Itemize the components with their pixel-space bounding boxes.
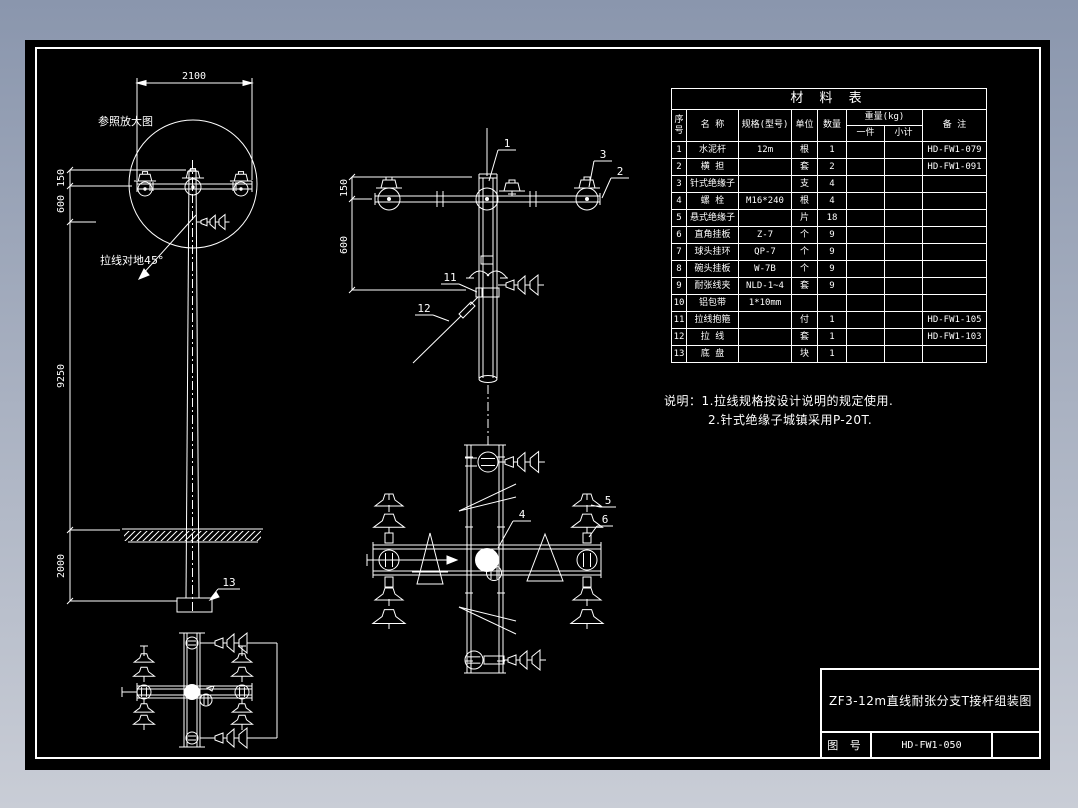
cell-qty: 1 xyxy=(818,346,847,363)
table-row: 2横 担套2HD-FW1-091 xyxy=(672,159,987,176)
cell-spec: 12m xyxy=(739,142,792,159)
cell-w_each xyxy=(847,159,885,176)
cell-note xyxy=(923,346,987,363)
cell-name: 铝包带 xyxy=(687,295,739,312)
dim-mid-600: 600 xyxy=(339,236,350,254)
table-row: 10铝包带1*10mm xyxy=(672,295,987,312)
table-row: 13底 盘块1 xyxy=(672,346,987,363)
enlarged-view-label: 参照放大图 xyxy=(98,114,153,128)
cell-note xyxy=(923,176,987,193)
cell-qty: 9 xyxy=(818,244,847,261)
col-header-weight-each: 一件 xyxy=(847,126,885,142)
cell-note xyxy=(923,261,987,278)
callout-12: 12 xyxy=(417,302,430,315)
cell-no: 12 xyxy=(672,329,687,346)
cell-w_sub xyxy=(885,176,923,193)
cell-unit: 个 xyxy=(792,227,818,244)
col-header-weight-subtotal: 小计 xyxy=(885,126,923,142)
table-row: 3针式绝缘子支4 xyxy=(672,176,987,193)
drawing-title: ZF3-12m直线耐张分支T接杆组装图 xyxy=(822,670,1039,733)
cell-qty: 1 xyxy=(818,312,847,329)
cell-qty: 9 xyxy=(818,278,847,295)
cell-note xyxy=(923,193,987,210)
cell-unit: 根 xyxy=(792,142,818,159)
table-row: 8碗头挂板W-7B个9 xyxy=(672,261,987,278)
notes: 说明：1.拉线规格按设计说明的规定使用. 2.针式绝缘子城镇采用P-20T. xyxy=(664,392,893,430)
cell-note xyxy=(923,278,987,295)
cell-no: 8 xyxy=(672,261,687,278)
cell-note xyxy=(923,210,987,227)
note-line-1: 说明：1.拉线规格按设计说明的规定使用. xyxy=(664,392,893,411)
col-header-unit: 单位 xyxy=(792,110,818,142)
cell-w_each xyxy=(847,278,885,295)
stay-angle-label: 拉线对地45° xyxy=(100,253,164,267)
cell-w_sub xyxy=(885,312,923,329)
cell-name: 螺 栓 xyxy=(687,193,739,210)
cad-drawing-window: 2100 150 600 9250 2000 xyxy=(0,0,1078,808)
cell-qty: 9 xyxy=(818,227,847,244)
cell-no: 13 xyxy=(672,346,687,363)
cell-w_sub xyxy=(885,295,923,312)
stay-insulator-string xyxy=(201,215,230,230)
table-row: 4螺 栓M16*240根4 xyxy=(672,193,987,210)
ground-hatch xyxy=(124,531,261,541)
table-row: 11拉线抱箍付1HD-FW1-105 xyxy=(672,312,987,329)
cell-qty xyxy=(818,295,847,312)
cell-qty: 4 xyxy=(818,176,847,193)
materials-table-body: 1水泥杆12m根1HD-FW1-0792横 担套2HD-FW1-0913针式绝缘… xyxy=(672,142,987,363)
cell-qty: 4 xyxy=(818,193,847,210)
cell-no: 6 xyxy=(672,227,687,244)
callout-13: 13 xyxy=(222,576,235,589)
col-header-name: 名 称 xyxy=(687,110,739,142)
cell-no: 3 xyxy=(672,176,687,193)
cell-unit: 根 xyxy=(792,193,818,210)
dim-left-150: 150 xyxy=(56,169,67,187)
table-row: 1水泥杆12m根1HD-FW1-079 xyxy=(672,142,987,159)
cell-spec xyxy=(739,312,792,329)
small-string-right xyxy=(232,646,253,730)
callout-6: 6 xyxy=(602,513,609,526)
pole-top-plan-view xyxy=(122,633,277,748)
dim-left-9250: 9250 xyxy=(56,364,67,388)
cell-name: 水泥杆 xyxy=(687,142,739,159)
cell-no: 9 xyxy=(672,278,687,295)
cell-spec: QP-7 xyxy=(739,244,792,261)
callout-3: 3 xyxy=(600,148,607,161)
cell-note: HD-FW1-091 xyxy=(923,159,987,176)
cell-w_sub xyxy=(885,261,923,278)
cell-w_sub xyxy=(885,159,923,176)
cell-unit: 块 xyxy=(792,346,818,363)
cell-name: 底 盘 xyxy=(687,346,739,363)
cell-name: 悬式绝缘子 xyxy=(687,210,739,227)
cell-note xyxy=(923,227,987,244)
cell-w_sub xyxy=(885,227,923,244)
col-header-spec: 规格(型号) xyxy=(739,110,792,142)
cell-w_each xyxy=(847,210,885,227)
suspension-string-right xyxy=(506,275,544,295)
cell-unit: 个 xyxy=(792,261,818,278)
table-row: 6直角挂板Z-7个9 xyxy=(672,227,987,244)
col-header-weight: 重量(kg) xyxy=(847,110,923,126)
branch-string-top xyxy=(465,452,545,473)
cell-name: 拉线抱箍 xyxy=(687,312,739,329)
cell-w_each xyxy=(847,244,885,261)
stay-wire xyxy=(470,297,478,305)
col-header-no: 序号 xyxy=(672,110,687,142)
dim-mid-150: 150 xyxy=(339,179,350,197)
cell-spec xyxy=(739,346,792,363)
cell-qty: 2 xyxy=(818,159,847,176)
cell-spec xyxy=(739,176,792,193)
cell-unit: 个 xyxy=(792,244,818,261)
cell-w_each xyxy=(847,176,885,193)
cell-spec: Z-7 xyxy=(739,227,792,244)
cell-w_each xyxy=(847,227,885,244)
suspension-string-right xyxy=(571,494,603,629)
table-row: 9耐张线夹NLD-1~4套9 xyxy=(672,278,987,295)
cell-w_each xyxy=(847,346,885,363)
cell-name: 针式绝缘子 xyxy=(687,176,739,193)
cell-note: HD-FW1-103 xyxy=(923,329,987,346)
dim-left-600: 600 xyxy=(56,195,67,213)
cell-no: 1 xyxy=(672,142,687,159)
branch-string-bottom xyxy=(465,650,546,670)
cell-unit xyxy=(792,295,818,312)
cell-no: 10 xyxy=(672,295,687,312)
table-row: 5悬式绝缘子片18 xyxy=(672,210,987,227)
drawing-number: HD-FW1-050 xyxy=(872,733,993,757)
cell-w_each xyxy=(847,261,885,278)
dim-span-2100: 2100 xyxy=(182,71,206,82)
cell-spec xyxy=(739,210,792,227)
cell-no: 5 xyxy=(672,210,687,227)
suspension-string-left xyxy=(373,494,405,629)
cell-unit: 套 xyxy=(792,159,818,176)
middle-elevation-view: 1 3 2 150 600 xyxy=(339,128,629,447)
cell-w_sub xyxy=(885,329,923,346)
cell-spec xyxy=(739,329,792,346)
title-block-empty-cell xyxy=(993,733,1039,757)
cell-name: 拉 线 xyxy=(687,329,739,346)
base-plate xyxy=(177,598,212,612)
drawing-number-label: 图 号 xyxy=(822,733,872,757)
col-header-note: 备 注 xyxy=(923,110,987,142)
cell-unit: 支 xyxy=(792,176,818,193)
table-row: 12拉 线套1HD-FW1-103 xyxy=(672,329,987,346)
cell-no: 7 xyxy=(672,244,687,261)
col-header-qty: 数量 xyxy=(818,110,847,142)
pole-top-section xyxy=(475,548,499,572)
cell-unit: 片 xyxy=(792,210,818,227)
table-title: 材 料 表 xyxy=(672,89,987,110)
cell-w_sub xyxy=(885,278,923,295)
cell-note: HD-FW1-105 xyxy=(923,312,987,329)
cell-spec: M16*240 xyxy=(739,193,792,210)
cell-spec: NLD-1~4 xyxy=(739,278,792,295)
cell-name: 横 担 xyxy=(687,159,739,176)
cell-no: 11 xyxy=(672,312,687,329)
cell-qty: 1 xyxy=(818,329,847,346)
cell-no: 2 xyxy=(672,159,687,176)
cell-w_sub xyxy=(885,244,923,261)
cell-no: 4 xyxy=(672,193,687,210)
branch-plan-view: 4 5 6 xyxy=(367,445,616,673)
cell-unit: 套 xyxy=(792,278,818,295)
cell-w_each xyxy=(847,329,885,346)
cell-name: 碗头挂板 xyxy=(687,261,739,278)
cell-unit: 套 xyxy=(792,329,818,346)
callout-4: 4 xyxy=(519,508,526,521)
dim-left-2000: 2000 xyxy=(56,554,67,578)
left-elevation-view: 2100 150 600 9250 2000 xyxy=(56,71,263,614)
note-line-2: 2.针式绝缘子城镇采用P-20T. xyxy=(708,411,893,430)
table-row: 7球头挂环QP-7个9 xyxy=(672,244,987,261)
cell-w_sub xyxy=(885,210,923,227)
cell-w_each xyxy=(847,312,885,329)
cell-qty: 18 xyxy=(818,210,847,227)
cell-w_each xyxy=(847,193,885,210)
cell-w_sub xyxy=(885,346,923,363)
cell-unit: 付 xyxy=(792,312,818,329)
cell-spec xyxy=(739,159,792,176)
callout-5: 5 xyxy=(605,494,612,507)
cell-qty: 9 xyxy=(818,261,847,278)
cell-qty: 1 xyxy=(818,142,847,159)
cell-w_each xyxy=(847,142,885,159)
callout-11: 11 xyxy=(443,271,456,284)
cell-note: HD-FW1-079 xyxy=(923,142,987,159)
cell-note xyxy=(923,244,987,261)
cell-w_sub xyxy=(885,193,923,210)
callout-1: 1 xyxy=(504,137,511,150)
title-block: ZF3-12m直线耐张分支T接杆组装图 图 号 HD-FW1-050 xyxy=(820,668,1041,759)
cell-w_sub xyxy=(885,142,923,159)
cell-spec: W-7B xyxy=(739,261,792,278)
materials-table: 材 料 表 序号 名 称 规格(型号) 单位 数量 重量(kg) 备 注 一件 … xyxy=(671,88,987,363)
cell-name: 直角挂板 xyxy=(687,227,739,244)
cell-note xyxy=(923,295,987,312)
cell-name: 球头挂环 xyxy=(687,244,739,261)
callout-2: 2 xyxy=(617,165,624,178)
cell-name: 耐张线夹 xyxy=(687,278,739,295)
cell-w_each xyxy=(847,295,885,312)
cell-spec: 1*10mm xyxy=(739,295,792,312)
